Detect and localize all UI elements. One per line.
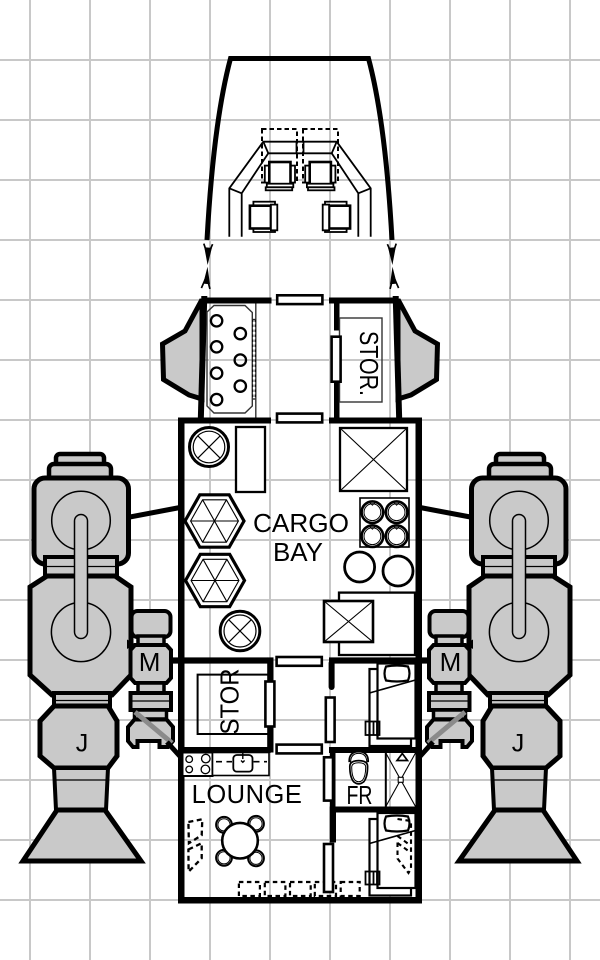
svg-text:J: J xyxy=(512,730,525,758)
svg-text:M: M xyxy=(440,647,462,677)
svg-text:LOUNGE: LOUNGE xyxy=(192,781,303,809)
svg-text:FR: FR xyxy=(347,782,373,810)
svg-text:CARGO: CARGO xyxy=(253,508,349,538)
svg-text:J: J xyxy=(76,730,89,758)
svg-text:STOR: STOR xyxy=(217,669,245,735)
svg-text:STOR.: STOR. xyxy=(354,331,382,396)
svg-text:BAY: BAY xyxy=(273,537,323,567)
svg-text:M: M xyxy=(139,647,161,677)
